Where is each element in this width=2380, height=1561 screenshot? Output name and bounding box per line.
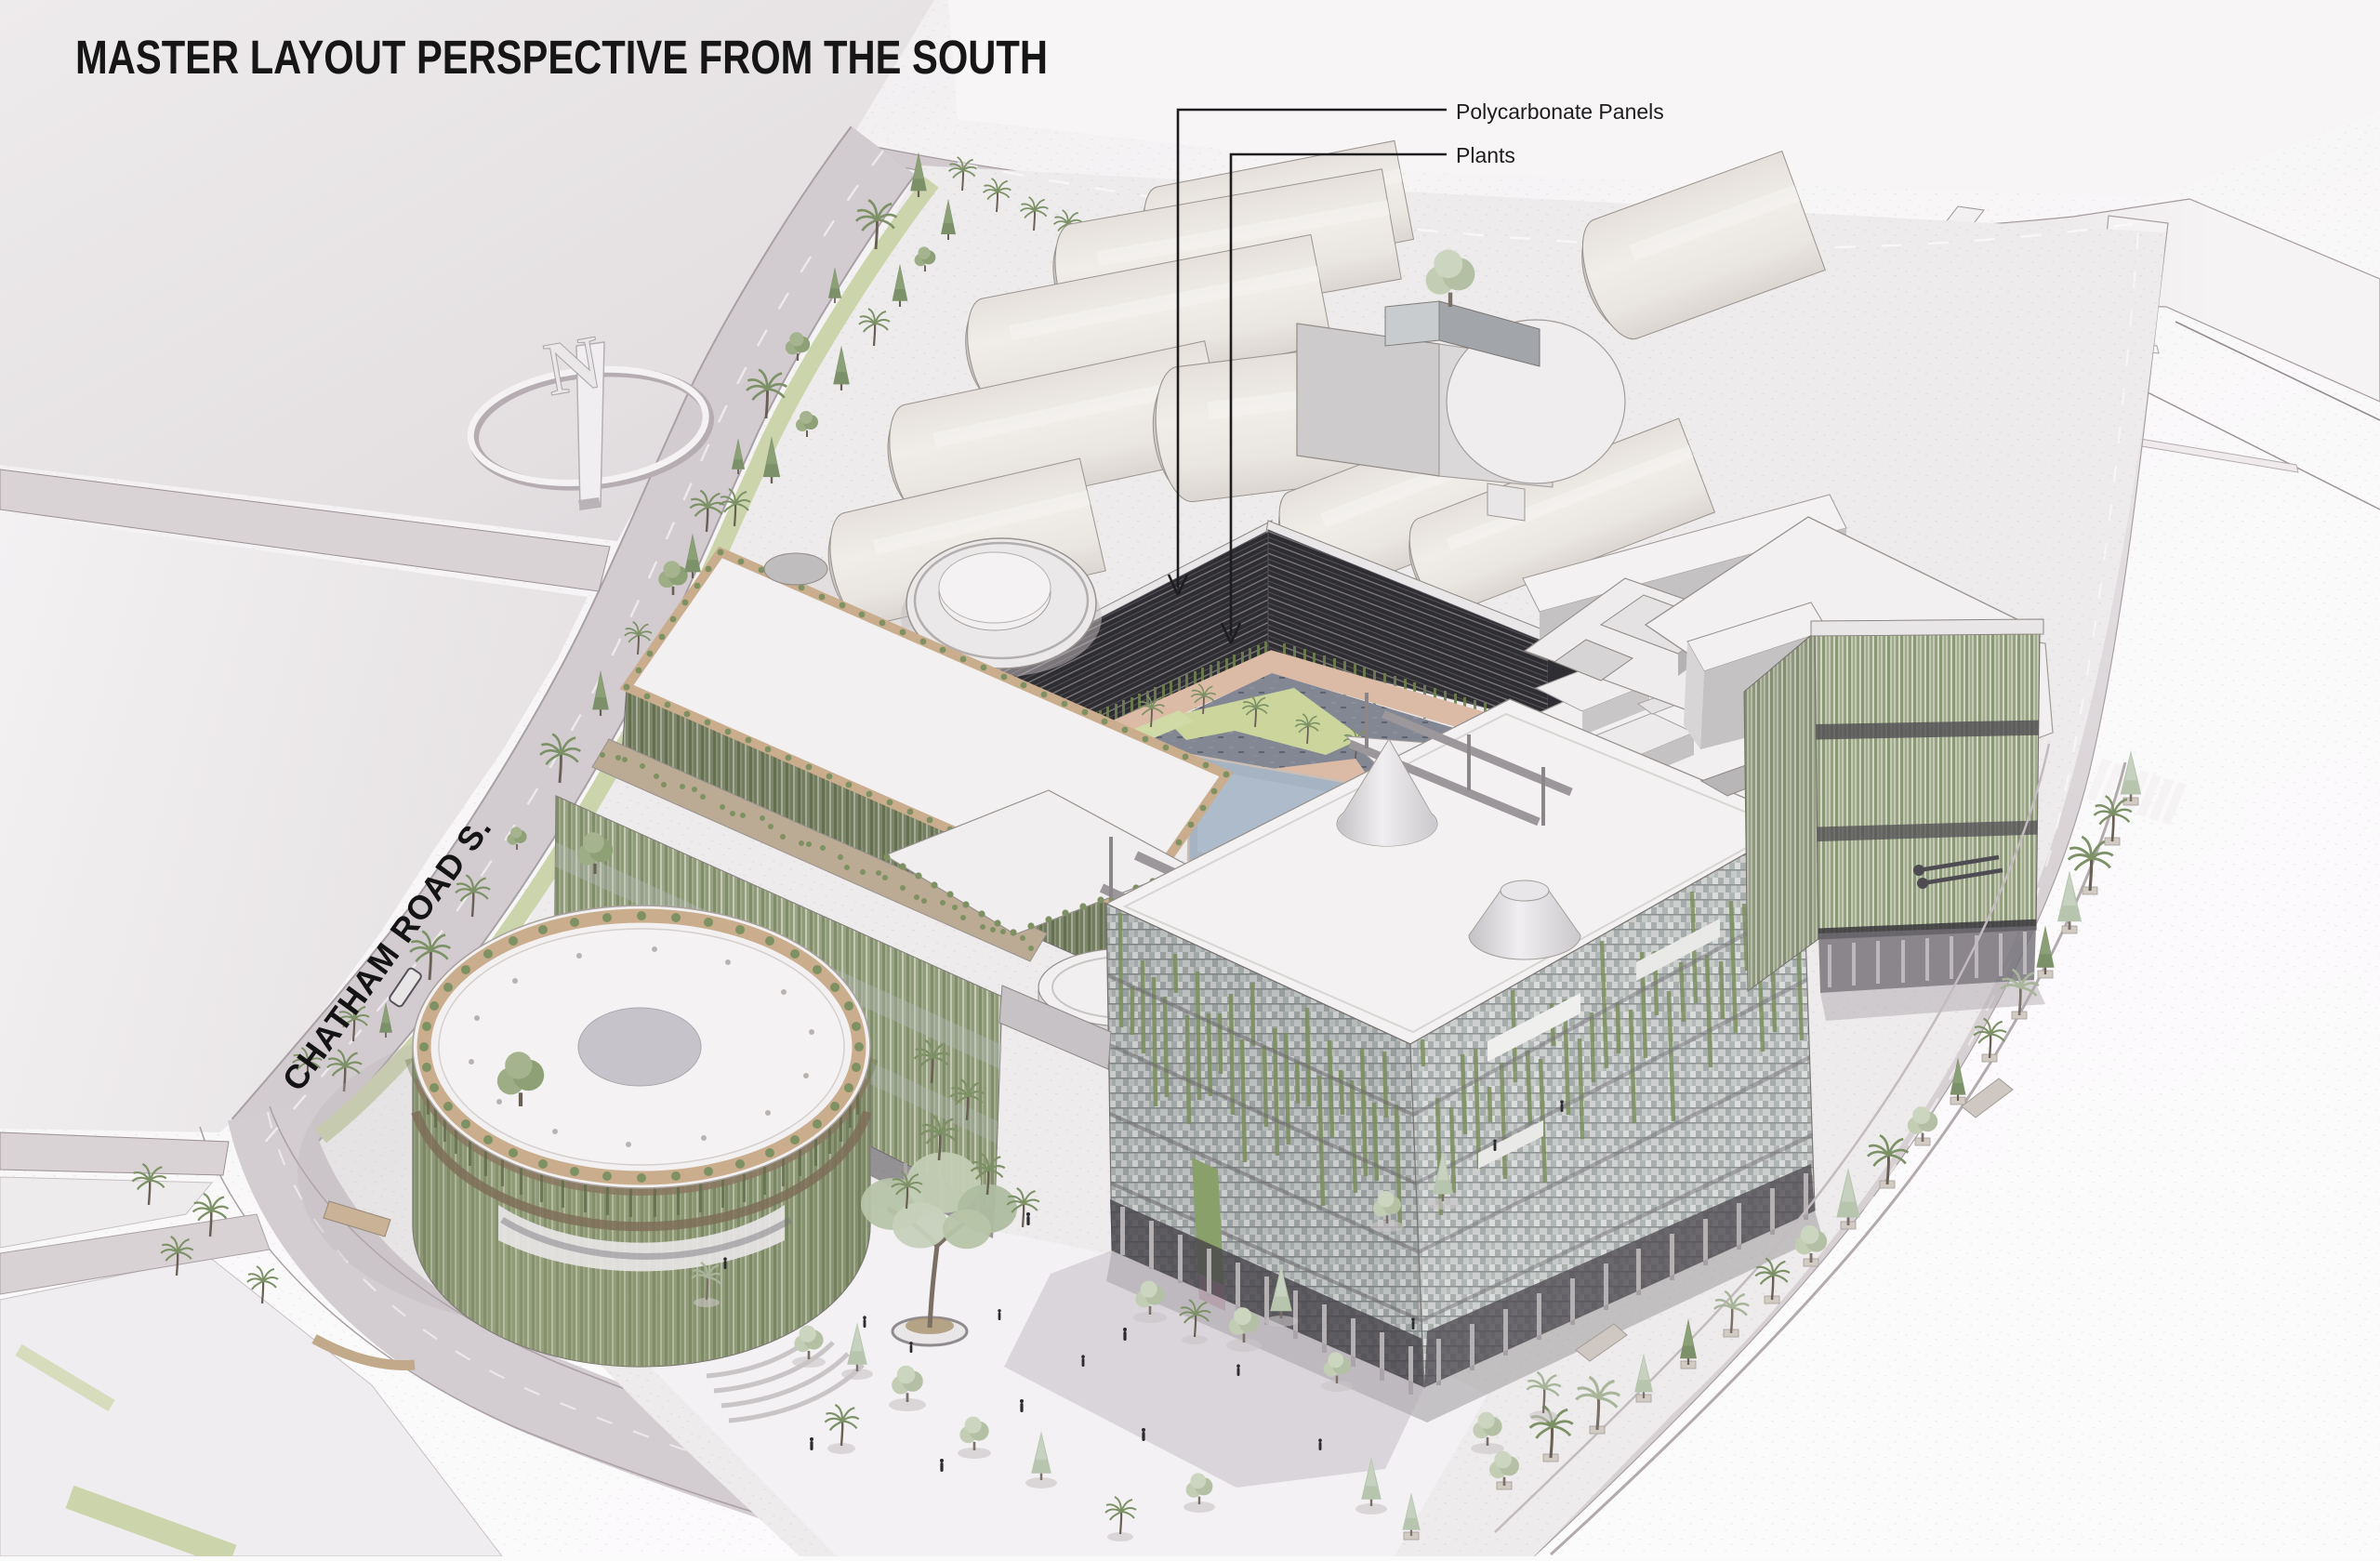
svg-text:MASTER LAYOUT PERSPECTIVE FROM: MASTER LAYOUT PERSPECTIVE FROM THE SOUTH [75, 31, 1048, 84]
svg-text:Polycarbonate Panels: Polycarbonate Panels [1456, 99, 1664, 124]
svg-text:Plants: Plants [1456, 143, 1515, 167]
